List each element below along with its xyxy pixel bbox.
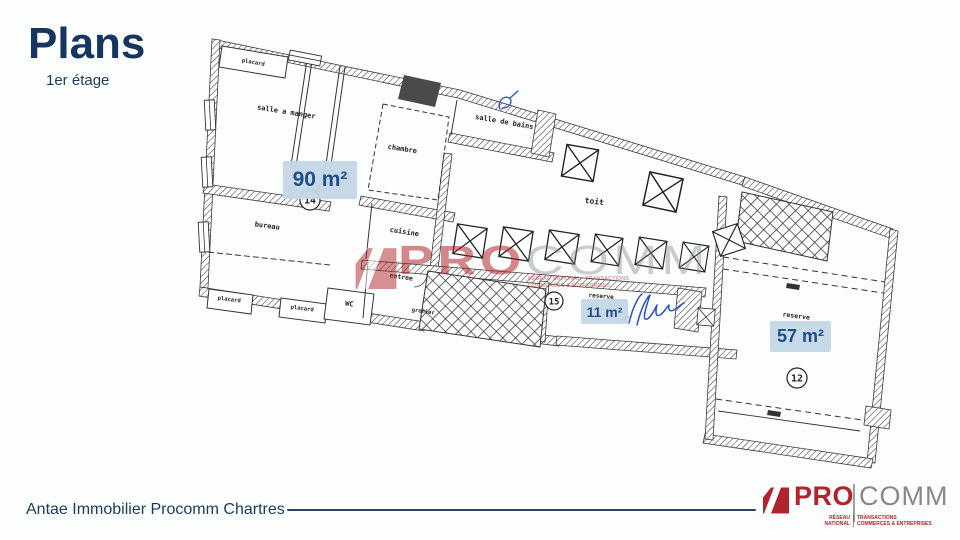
roof-window-icon xyxy=(453,224,487,258)
lot-circle-15: 15 xyxy=(545,292,563,310)
logo-comm-text: COMM xyxy=(859,481,948,512)
roof-window-icon xyxy=(499,227,533,261)
room-label-toit: toit xyxy=(584,195,605,207)
room-label-cuisine: cuisine xyxy=(389,226,419,239)
area-badge-57: 57 m² xyxy=(770,321,831,352)
svg-text:12: 12 xyxy=(791,374,803,385)
logo-pro-text: PRO xyxy=(794,481,854,512)
logo-tagline: RÉSEAU NATIONAL TRANSACTIONS COMMERCES &… xyxy=(818,515,932,527)
footer-divider xyxy=(287,509,756,511)
watermark-tagline: RÉSEAU NATIONAL · TRANSACTIONS COMMERCES… xyxy=(528,276,636,290)
logo-tagline-network: RÉSEAU NATIONAL xyxy=(818,515,850,527)
slide-root: Plans 1er étage xyxy=(0,0,960,540)
room-label-wc: WC xyxy=(345,299,354,308)
room-label-reserve-2: reserve xyxy=(782,310,810,321)
procomm-logo: PRO COMM RÉSEAU NATIONAL TRANSACTIONS CO… xyxy=(762,483,952,531)
floor-plan: placard salle a manger chambre salle de … xyxy=(0,0,960,540)
procomm-logo-icon xyxy=(762,485,790,514)
roof-window-icon xyxy=(635,237,667,269)
area-badge-11: 11 m² xyxy=(581,299,628,324)
roof-window-icon xyxy=(591,234,623,266)
roof-window-icon xyxy=(561,144,598,181)
roof-window-icon xyxy=(697,308,716,327)
area-badge-90: 90 m² xyxy=(283,161,357,199)
logo-tagline-network-line2: NATIONAL xyxy=(818,521,850,527)
roof-window-icon xyxy=(545,230,579,264)
logo-tagline-separator xyxy=(853,515,854,527)
roof-window-icon xyxy=(679,242,709,272)
room-label-salle-a-manger: salle a manger xyxy=(257,103,317,120)
roof-window-icon xyxy=(643,172,683,212)
room-label-chambre: chambre xyxy=(387,143,417,156)
room-label-bureau: bureau xyxy=(254,220,280,231)
chimney-block xyxy=(398,75,441,107)
floor-plan-drawing: placard salle a manger chambre salle de … xyxy=(0,0,960,540)
svg-text:15: 15 xyxy=(549,298,560,308)
logo-tagline-activity-line2: COMMERCES & ENTREPRISES xyxy=(857,521,932,527)
lot-circle-12: 12 xyxy=(787,368,807,388)
logo-tagline-activity: TRANSACTIONS COMMERCES & ENTREPRISES xyxy=(857,515,932,527)
agency-name: Antae Immobilier Procomm Chartres xyxy=(26,501,285,519)
